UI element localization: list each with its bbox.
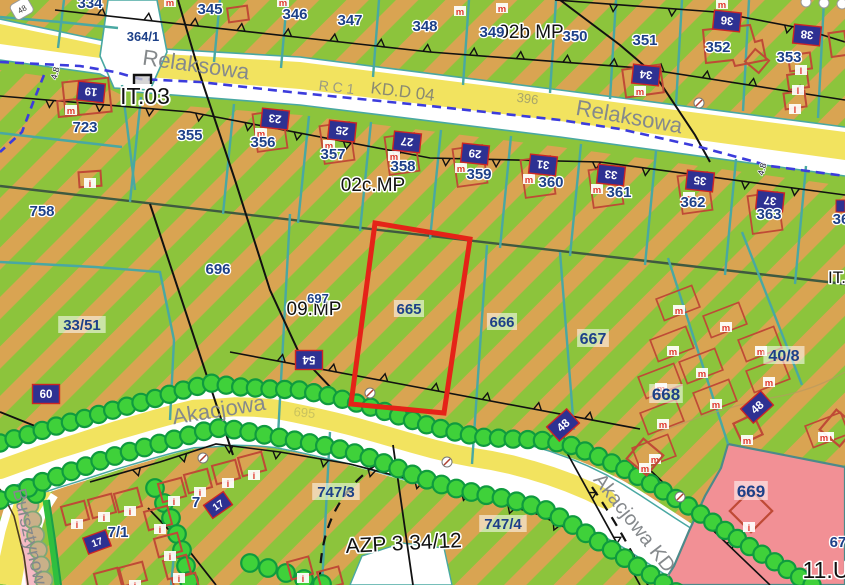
svg-text:i: i (134, 581, 137, 585)
svg-text:m: m (659, 420, 667, 431)
svg-text:758: 758 (29, 203, 54, 220)
svg-text:m: m (722, 323, 730, 334)
svg-text:i: i (748, 523, 751, 534)
svg-text:m: m (743, 436, 751, 447)
svg-text:11.U: 11.U (803, 557, 845, 583)
svg-text:m: m (593, 185, 601, 196)
svg-text:396: 396 (516, 90, 539, 108)
svg-text:358: 358 (390, 158, 415, 175)
svg-text:m: m (765, 378, 773, 389)
svg-text:353: 353 (776, 49, 801, 66)
svg-text:l: l (797, 86, 800, 97)
svg-text:348: 348 (412, 18, 437, 35)
svg-text:29: 29 (468, 146, 482, 159)
svg-text:668: 668 (652, 385, 680, 404)
svg-text:7/1: 7/1 (108, 524, 129, 541)
svg-text:697: 697 (307, 291, 329, 306)
svg-text:334: 334 (77, 0, 103, 12)
svg-text:i: i (159, 525, 162, 536)
svg-text:747/3: 747/3 (317, 484, 355, 501)
svg-text:666: 666 (489, 314, 514, 331)
svg-text:31: 31 (536, 157, 551, 170)
svg-text:747/4: 747/4 (484, 516, 522, 533)
svg-text:352: 352 (705, 39, 730, 56)
svg-text:665: 665 (396, 301, 421, 318)
svg-text:350: 350 (562, 28, 587, 45)
svg-text:37: 37 (763, 193, 777, 206)
svg-text:IT.: IT. (828, 268, 845, 287)
svg-text:360: 360 (538, 174, 563, 191)
svg-text:19: 19 (84, 84, 98, 97)
svg-text:363: 363 (756, 206, 781, 223)
svg-text:40/8: 40/8 (768, 348, 799, 365)
svg-text:54: 54 (302, 353, 315, 365)
svg-text:l: l (800, 66, 803, 77)
svg-text:347: 347 (337, 12, 362, 29)
svg-text:357: 357 (320, 146, 345, 163)
svg-text:38: 38 (800, 27, 815, 40)
svg-text:696: 696 (205, 261, 230, 278)
svg-text:IT.03: IT.03 (120, 83, 170, 109)
svg-text:m: m (712, 400, 720, 411)
svg-text:i: i (76, 520, 79, 531)
svg-text:349: 349 (479, 24, 504, 41)
svg-text:364/1: 364/1 (127, 29, 160, 44)
svg-text:m: m (669, 347, 677, 358)
svg-text:67: 67 (830, 534, 845, 551)
svg-text:m: m (641, 464, 649, 475)
svg-text:669: 669 (737, 482, 765, 501)
svg-text:23: 23 (268, 111, 282, 124)
svg-text:m: m (456, 7, 464, 18)
svg-text:345: 345 (197, 1, 222, 18)
svg-text:60: 60 (40, 389, 53, 401)
svg-text:723: 723 (72, 119, 97, 136)
svg-text:346: 346 (282, 6, 307, 23)
svg-text:m: m (820, 433, 828, 444)
svg-text:m: m (675, 306, 683, 317)
svg-text:m: m (166, 0, 174, 9)
svg-text:25: 25 (335, 123, 350, 136)
svg-text:i: i (169, 552, 172, 563)
svg-text:i: i (253, 471, 256, 482)
svg-text:m: m (457, 164, 465, 175)
svg-text:351: 351 (632, 32, 657, 49)
svg-text:7: 7 (192, 494, 200, 511)
svg-text:m: m (636, 87, 644, 98)
svg-text:33: 33 (604, 167, 618, 180)
svg-text:i: i (129, 507, 132, 518)
svg-text:i: i (302, 574, 305, 585)
svg-text:i: i (103, 513, 106, 524)
svg-text:i: i (89, 179, 92, 190)
svg-text:36: 36 (720, 13, 734, 26)
svg-text:667: 667 (580, 331, 607, 348)
svg-text:i: i (173, 497, 176, 508)
svg-text:36: 36 (833, 211, 845, 228)
svg-text:m: m (525, 175, 533, 186)
svg-text:355: 355 (177, 127, 202, 144)
svg-text:356: 356 (250, 134, 275, 151)
svg-text:02b MP: 02b MP (498, 22, 563, 43)
svg-text:33/51: 33/51 (63, 317, 101, 334)
svg-text:362: 362 (680, 194, 705, 211)
svg-text:34: 34 (639, 67, 654, 80)
svg-text:i: i (178, 574, 181, 585)
svg-text:27: 27 (400, 134, 414, 147)
svg-text:35: 35 (693, 173, 708, 186)
svg-text:m: m (498, 4, 506, 15)
svg-text:m: m (718, 0, 726, 11)
svg-text:02c.MP: 02c.MP (341, 175, 405, 196)
svg-text:i: i (227, 479, 230, 490)
svg-text:m: m (67, 106, 75, 117)
svg-text:695: 695 (293, 404, 316, 421)
svg-text:l: l (794, 105, 797, 116)
svg-text:m: m (698, 369, 706, 380)
svg-text:359: 359 (466, 166, 491, 183)
svg-text:361: 361 (606, 184, 631, 201)
